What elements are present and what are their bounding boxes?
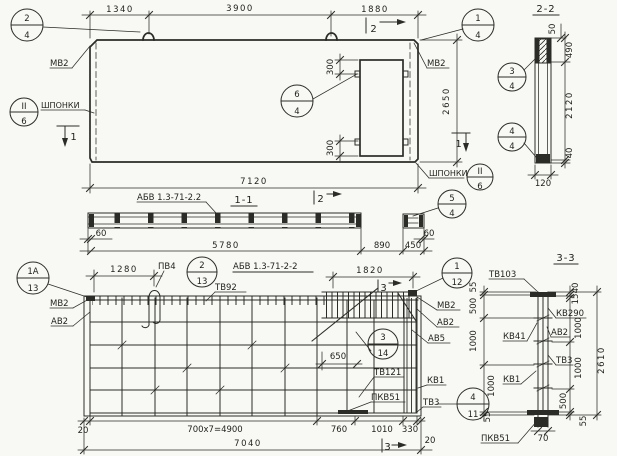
svg-text:6: 6	[21, 117, 26, 127]
svg-text:4: 4	[475, 31, 480, 41]
svg-text:14: 14	[378, 349, 389, 359]
svg-text:1: 1	[475, 14, 480, 24]
svg-text:11: 11	[468, 410, 479, 420]
cut-mark-2-top: 2	[366, 18, 406, 35]
dim-700x7: 700x7=4900	[187, 425, 242, 435]
dim-500-right: 500	[559, 393, 569, 409]
marker-6-4: 64	[281, 74, 357, 117]
dim-2650: 2650	[442, 87, 452, 115]
label-pkv51: ПКВ51	[481, 434, 510, 444]
rebar-layout-view: АБВ 1.3-71-2-2 1280 ПВ4 1820 3 МВ2 АВ2 Т…	[17, 257, 489, 454]
dim-500-left: 500	[469, 298, 479, 314]
svg-text:3: 3	[380, 333, 385, 343]
svg-text:1А: 1А	[27, 267, 38, 277]
dim-1820: 1820	[356, 266, 384, 276]
label-kv1: КВ1	[427, 376, 444, 386]
dim-890: 890	[374, 241, 390, 251]
svg-text:13: 13	[28, 284, 39, 294]
cut-mark-3-bottom: 3	[382, 439, 407, 453]
dim-20-right: 20	[425, 436, 436, 446]
marker-4-4: 44	[498, 123, 536, 157]
dim-5780: 5780	[212, 241, 240, 251]
dim-1000-left-a: 1000	[469, 330, 479, 352]
label-av2: АВ2	[551, 328, 568, 338]
label-kv1: КВ1	[503, 375, 520, 385]
dim-40-right: 40	[571, 283, 581, 294]
section-1-1-view: АБВ 1.3-71-2.2 1-1 2 54 60 60 5780 890 4…	[80, 190, 466, 255]
label-mv2-right: МВ2	[427, 59, 446, 69]
label-tv3: ТВ3	[555, 356, 572, 366]
marker-1-12: 112	[414, 258, 472, 292]
dim-1000-right-b: 1000	[574, 357, 584, 379]
door-opening	[360, 60, 403, 156]
dim-1280: 1280	[110, 265, 138, 275]
panel-mark-label: АБВ 1.3-71-2.2	[137, 193, 201, 203]
label-shponki-left: ШПОНКИ	[41, 101, 80, 110]
label-pv4: ПВ4	[158, 262, 176, 272]
dim-1340: 1340	[106, 5, 134, 15]
label-tv92: ТВ92	[214, 283, 237, 293]
dim-300-top: 300	[326, 59, 336, 75]
drawing-sheet: 1340 3900 1880 300 300 2650 7120 2 1 1 М…	[0, 0, 617, 456]
label-tv121: ТВ121	[373, 368, 401, 378]
section-2-2-title: 2-2	[536, 4, 555, 15]
dim-300-bottom: 300	[326, 140, 336, 156]
svg-text:4: 4	[509, 127, 514, 137]
dim-40: 40	[565, 148, 575, 159]
label-mv2-left: МВ2	[50, 299, 69, 309]
dim-330: 330	[402, 425, 418, 435]
svg-text:4: 4	[24, 31, 29, 41]
marker-1a-13: 1А13	[17, 262, 87, 297]
label-mv2-right: МВ2	[437, 301, 456, 311]
svg-text:II: II	[21, 102, 26, 112]
svg-text:2: 2	[199, 261, 204, 271]
panel-outline	[90, 40, 418, 162]
dim-60-right: 60	[424, 229, 435, 239]
dim-70: 70	[538, 434, 549, 444]
svg-text:3: 3	[384, 442, 391, 453]
svg-text:6: 6	[477, 182, 482, 192]
label-tv103: ТВ103	[488, 270, 516, 280]
dim-7040: 7040	[234, 439, 262, 449]
svg-text:5: 5	[449, 194, 454, 204]
dim-60-left: 60	[96, 229, 107, 239]
dim-2610: 2610	[597, 346, 607, 374]
svg-text:4: 4	[449, 209, 454, 219]
svg-text:2: 2	[24, 14, 29, 24]
svg-text:4: 4	[294, 107, 299, 117]
cut-mark-1-left: 1	[57, 126, 79, 147]
marker-shponki-right: II6	[467, 164, 493, 192]
svg-text:3: 3	[380, 283, 387, 294]
svg-text:1: 1	[454, 262, 459, 272]
svg-text:2: 2	[370, 24, 377, 35]
dim-650: 650	[330, 352, 346, 362]
cut-mark-1-right: 1	[452, 133, 470, 152]
dim-490: 490	[565, 42, 575, 58]
svg-text:4: 4	[509, 142, 514, 152]
section-2-2-view: 2-2 50 490 2120 40 120 34 44	[498, 4, 575, 189]
dim-120: 120	[535, 179, 551, 189]
svg-text:2: 2	[317, 194, 324, 205]
svg-text:6: 6	[294, 90, 299, 100]
section-1-1-title: 1-1	[234, 195, 253, 206]
label-pkv51: ПКВ51	[371, 393, 400, 403]
dim-55-left-bot: 55	[483, 412, 493, 423]
dim-1000-right-a: 1000	[574, 317, 584, 339]
dim-1010: 1010	[371, 425, 393, 435]
section-3-3-title: 3-3	[556, 253, 575, 264]
label-av2-left: АВ2	[51, 317, 68, 327]
marker-3-14: 314	[356, 329, 398, 359]
dim-50: 50	[548, 24, 558, 35]
svg-text:3: 3	[509, 67, 514, 77]
dim-760: 760	[331, 425, 347, 435]
svg-text:4: 4	[509, 82, 514, 92]
rebar-title: АБВ 1.3-71-2-2	[233, 262, 298, 272]
svg-text:II: II	[477, 167, 482, 177]
lifting-loop-icon	[143, 33, 154, 40]
elevation-view: 1340 3900 1880 300 300 2650 7120 2 1 1 М…	[10, 4, 494, 193]
dim-450: 450	[405, 241, 421, 251]
svg-text:4: 4	[470, 393, 475, 403]
marker-shponki-left: II6	[10, 98, 38, 127]
dim-7120: 7120	[240, 177, 268, 187]
svg-text:1: 1	[455, 139, 462, 150]
svg-text:1: 1	[70, 132, 77, 143]
dim-20-left: 20	[78, 426, 89, 436]
label-kv290: КВ290	[556, 309, 584, 319]
label-tv3: ТВ3	[422, 398, 439, 408]
section-3-3-view: 3-3 55 500 1000 1000 55 40 15 1000 1000 …	[469, 253, 607, 444]
label-av5: АВ5	[428, 334, 445, 344]
dim-1000-left-b: 1000	[487, 375, 497, 397]
marker-3-4: 34	[498, 59, 535, 92]
lifting-loop-icon	[326, 33, 337, 40]
label-av2-right: АВ2	[437, 318, 454, 328]
marker-1-4: 14	[421, 9, 494, 41]
marker-2-13: 213	[187, 257, 217, 287]
label-kv41: КВ41	[503, 332, 526, 342]
svg-text:13: 13	[197, 277, 208, 287]
dim-55-left-top: 55	[469, 282, 479, 293]
engineering-drawing: 1340 3900 1880 300 300 2650 7120 2 1 1 М…	[0, 0, 617, 456]
label-mv2-left: МВ2	[50, 59, 69, 69]
dim-1880: 1880	[361, 5, 389, 15]
svg-text:12: 12	[452, 278, 463, 288]
marker-5-4: 54	[413, 190, 466, 219]
dim-3900: 3900	[226, 4, 254, 14]
cut-mark-2-mid: 2	[314, 191, 342, 205]
dim-2120: 2120	[565, 91, 575, 119]
dim-15-right: 15	[571, 294, 581, 305]
label-shponki-right: ШПОНКИ	[429, 169, 468, 178]
dim-55-right: 55	[579, 416, 589, 427]
